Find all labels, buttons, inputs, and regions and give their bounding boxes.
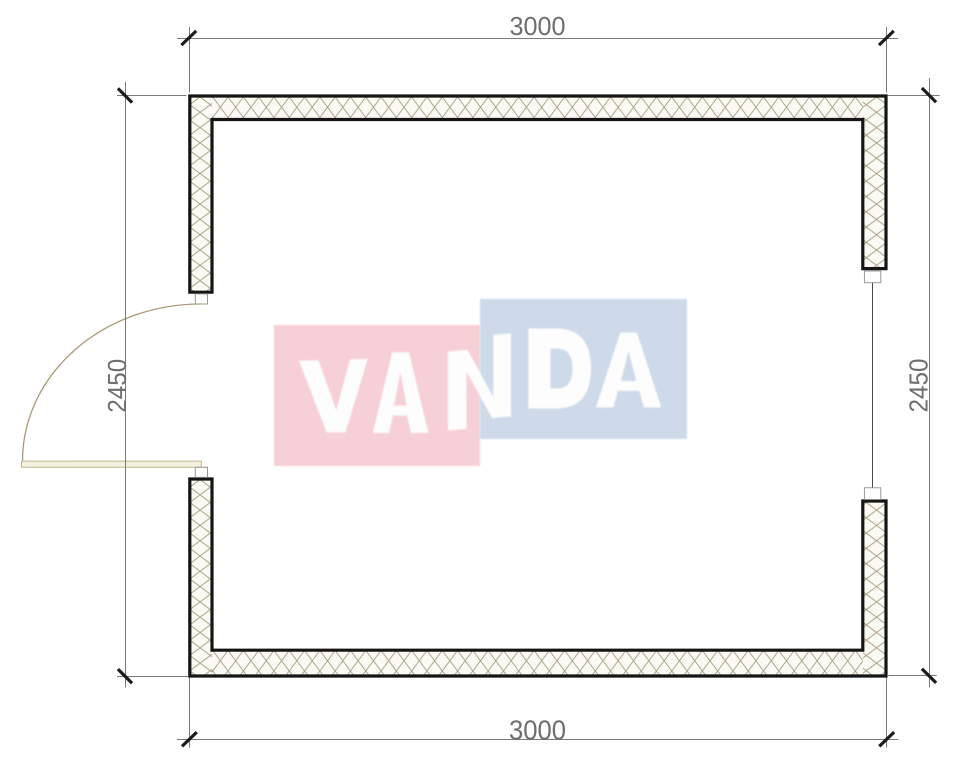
- svg-text:2450: 2450: [104, 359, 132, 413]
- svg-text:2450: 2450: [906, 359, 934, 413]
- svg-text:3000: 3000: [510, 11, 566, 41]
- svg-text:3000: 3000: [509, 715, 566, 746]
